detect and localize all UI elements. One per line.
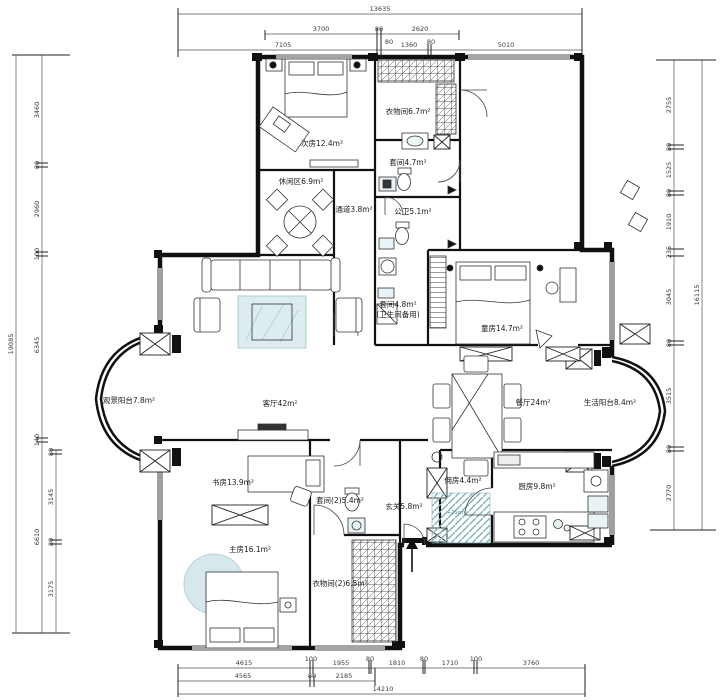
- dim-value: 80: [47, 538, 55, 546]
- dim-value: 1360: [401, 41, 418, 49]
- dim-value: 80: [665, 143, 673, 151]
- room-label-yiwujian1: 衣物间6.7m²: [386, 106, 431, 116]
- room-label-taojian1: 套间4.7m²: [389, 157, 426, 167]
- dim-value: 1810: [389, 659, 406, 667]
- room-label-taojian2: 套间(2)5.4m²: [316, 495, 364, 505]
- study-table: [212, 505, 268, 525]
- dim-value: 3515: [665, 388, 673, 405]
- dim-value: 3700: [313, 25, 330, 33]
- dim-value: 100: [33, 248, 41, 260]
- dim-value: 3145: [47, 489, 55, 506]
- dim-value: 4615: [236, 659, 253, 667]
- dim-value: 2620: [412, 25, 429, 33]
- dim-value: 80: [665, 339, 673, 347]
- room-label-yiwujian2: 衣物间(2)6.5m²: [312, 578, 367, 588]
- room-label-zhufang: 主房16.1m²: [229, 544, 271, 554]
- room-label-chufang: 厨房9.8m²: [518, 481, 555, 491]
- sideboard-2: [546, 347, 580, 361]
- top-dimensions: 13635 3700 80 2620 7105 80 1360 80 5010: [275, 5, 515, 49]
- closet-top: [378, 60, 454, 82]
- dim-value: 4565: [235, 672, 252, 680]
- dim-value: 3460: [33, 102, 41, 119]
- dim-value: 3760: [523, 659, 540, 667]
- ac-platform: [620, 324, 650, 344]
- room-sublabel-beiyong: (卫生间备用): [376, 309, 419, 319]
- dim-value: 2960: [33, 201, 41, 218]
- room-label-yongfang: 佣房4.4m²: [444, 475, 481, 485]
- step-height-note: +25cm: [447, 510, 465, 516]
- dim-value: 3175: [47, 581, 55, 598]
- bay-window-right: [612, 357, 665, 466]
- dim-value: 80: [665, 189, 673, 197]
- bed-kids: [447, 262, 576, 348]
- dim-value: 100: [305, 655, 317, 663]
- pier-left-bottom: [140, 450, 170, 472]
- dim-value: 235: [665, 246, 673, 258]
- dim-value: 1955: [333, 659, 350, 667]
- room-label-tongdao: 通道3.8m²: [335, 204, 372, 214]
- dim-value: 19085: [7, 334, 15, 355]
- bed-master: [206, 572, 296, 648]
- bottom-dimensions: 4615 100 1955 80 1810 80 1710 100 3760 4…: [235, 655, 540, 693]
- entry-cabinet: [434, 135, 450, 149]
- room-label-xiuxianqu: 休闲区6.9m²: [279, 176, 324, 186]
- pier-left-top: [140, 333, 170, 355]
- dim-value: 80: [385, 38, 393, 46]
- room-label-xuanguan: 玄关5.8m²: [385, 501, 422, 511]
- dim-value: 80: [427, 38, 435, 46]
- dim-value: 80: [308, 672, 316, 680]
- dim-value: 80: [375, 25, 383, 33]
- dim-value: 100: [470, 655, 482, 663]
- room-label-taojian-beiyong: 套间4.8m²: [379, 299, 416, 309]
- room-label-keting: 客厅42m²: [263, 398, 298, 408]
- room-label-shufang: 书房13.9m²: [212, 477, 254, 487]
- dim-value: 80: [665, 445, 673, 453]
- dim-value: 2770: [665, 485, 673, 502]
- room-label-tongfang: 童房14.7m²: [481, 323, 523, 333]
- dim-value: 1525: [665, 162, 673, 179]
- dim-value: 14210: [373, 685, 394, 693]
- floor-plan-canvas: 13635 3700 80 2620 7105 80 1360 80 5010 …: [0, 0, 722, 700]
- room-label-shenghuo-yangtai: 生活阳台8.4m²: [584, 397, 636, 407]
- tv-console: [238, 424, 308, 440]
- floor-plan-drawing: 13635 3700 80 2620 7105 80 1360 80 5010 …: [0, 0, 722, 700]
- bath-public: [379, 222, 409, 249]
- bed-secondary: [259, 59, 366, 167]
- dim-value: 80: [47, 448, 55, 456]
- dim-value: 140: [33, 434, 41, 446]
- door-mat: [402, 538, 426, 543]
- living-rug: [238, 296, 306, 348]
- dim-value: 7105: [275, 41, 292, 49]
- dim-value: 3045: [665, 289, 673, 306]
- kidsroom-wardrobe: [430, 256, 446, 328]
- dim-value: 2755: [665, 97, 673, 114]
- dim-value: 16115: [693, 285, 701, 306]
- closet-right: [436, 84, 456, 134]
- dim-value: 80: [420, 655, 428, 663]
- right-dimensions: 2755 80 1525 80 1910 235 3045 80 3515 80…: [665, 97, 701, 502]
- dim-value: 2185: [336, 672, 353, 680]
- study-desk: [248, 456, 324, 507]
- bath-suite2: [345, 488, 365, 533]
- step-hatch: [432, 493, 490, 543]
- dim-value: 5010: [498, 41, 515, 49]
- room-label-guanjing-yangtai: 观景阳台7.8m²: [103, 395, 155, 405]
- left-dimensions: 19085 3460 80 2960 100 6345 140 6610 80 …: [7, 102, 55, 598]
- dim-value: 80: [366, 655, 374, 663]
- room-label-cifang: 次房12.4m²: [301, 138, 343, 148]
- dim-value: 13635: [370, 5, 391, 13]
- dim-value: 1710: [442, 659, 459, 667]
- dim-value: 1910: [665, 214, 673, 231]
- room-label-canting: 餐厅24m²: [516, 398, 551, 407]
- dim-value: 6345: [33, 337, 41, 354]
- dim-value: 6610: [33, 529, 41, 546]
- dim-value: 80: [33, 161, 41, 169]
- leisure-table: [266, 189, 333, 256]
- closet2-wardrobe: [352, 540, 396, 642]
- room-label-gongwei: 公卫5.1m²: [394, 207, 431, 216]
